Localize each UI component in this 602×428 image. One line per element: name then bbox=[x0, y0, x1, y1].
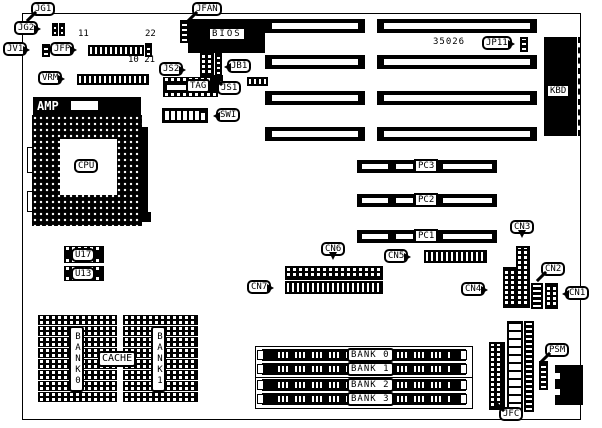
kbd-dashed-edge bbox=[578, 37, 580, 136]
jg2-label: JG2 bbox=[14, 21, 38, 35]
jfc-label: JFC bbox=[499, 407, 523, 421]
simm-clip bbox=[257, 350, 264, 360]
power-connector-pins bbox=[524, 321, 534, 412]
swi-label: SWI bbox=[216, 108, 240, 122]
kbd-label: KBD bbox=[547, 85, 569, 97]
pc2-label: PC2 bbox=[414, 193, 438, 207]
cn5-label: CN5 bbox=[384, 249, 408, 263]
isa-slot-2-short bbox=[265, 55, 365, 69]
js2-header bbox=[200, 53, 214, 77]
isa-slot-3-short bbox=[265, 91, 365, 105]
pci-slot-segment bbox=[443, 164, 492, 169]
simm-clip bbox=[460, 380, 467, 390]
cn4-header bbox=[503, 267, 516, 308]
motherboard-diagram: JG1 JG2 JV1 JFP 11 22 10 21 VRM AMP CPU … bbox=[0, 0, 602, 428]
cn2-label: CN2 bbox=[541, 262, 565, 276]
pc3-label: PC3 bbox=[414, 159, 438, 173]
swi-dip-end-switch bbox=[200, 112, 206, 121]
pci-slot-segment bbox=[396, 164, 413, 169]
jfp-pin11-number: 11 bbox=[78, 30, 89, 39]
jg2-jumper bbox=[52, 23, 58, 36]
cache-bank1-label: BANK1 bbox=[151, 326, 166, 392]
cache-chip bbox=[38, 392, 117, 402]
cn6-label: CN6 bbox=[321, 242, 345, 256]
u17-label: U17 bbox=[71, 248, 95, 262]
swi-dip-positions bbox=[165, 111, 199, 120]
jfan-label: JFAN bbox=[192, 2, 222, 16]
jg2-jumper-2 bbox=[59, 23, 65, 36]
connector-notch bbox=[555, 389, 560, 395]
tag-ram-window bbox=[167, 85, 186, 90]
swi-dip-switch bbox=[162, 108, 208, 123]
board-part-number: 35026 bbox=[433, 38, 465, 47]
u13-label: U13 bbox=[71, 267, 95, 281]
bank0-label: BANK 0 bbox=[347, 348, 394, 362]
cpu-socket-tab bbox=[27, 147, 33, 173]
cn7-label: CN7 bbox=[247, 280, 271, 294]
cache-label: CACHE bbox=[98, 351, 136, 367]
cpu-socket-foot bbox=[141, 212, 151, 222]
js2-label: JS2 bbox=[159, 62, 183, 76]
amp-window bbox=[71, 101, 98, 110]
header-right-of-tag bbox=[247, 77, 268, 86]
vrm-header bbox=[77, 74, 149, 85]
pc1-label: PC1 bbox=[414, 229, 438, 243]
cpu-socket-lever bbox=[140, 127, 148, 213]
jfp-label: JFP bbox=[50, 42, 74, 56]
simm-clip bbox=[257, 364, 264, 374]
pci-slot-segment bbox=[362, 234, 388, 239]
pci-slot-segment bbox=[396, 198, 413, 203]
cache-bank0-label: BANK0 bbox=[69, 326, 84, 392]
cn4-label: CN4 bbox=[461, 282, 485, 296]
jv1-label: JV1 bbox=[3, 42, 27, 56]
simm-clip bbox=[257, 380, 264, 390]
jp11-label: JP11 bbox=[482, 36, 512, 50]
isa-slot-1-long bbox=[377, 19, 537, 33]
cn6-header bbox=[285, 266, 383, 280]
power-switch-connector bbox=[555, 365, 583, 405]
jfp-pin10-21-number: 10 21 bbox=[128, 56, 155, 65]
bios-label: BIOS bbox=[209, 28, 245, 40]
cache-chip bbox=[38, 315, 117, 325]
isa-slot-4-long bbox=[377, 127, 537, 141]
cpu-socket-tab-2 bbox=[27, 191, 33, 212]
isa-slot-4-short bbox=[265, 127, 365, 141]
pci-slot-segment bbox=[443, 198, 492, 203]
simm-clip bbox=[460, 364, 467, 374]
pci-slot-segment bbox=[362, 198, 388, 203]
psm-header bbox=[539, 361, 548, 390]
isa-slot-2-long bbox=[377, 55, 537, 69]
connector-notch bbox=[555, 373, 560, 379]
bank2-label: BANK 2 bbox=[347, 378, 394, 392]
jv1-jumper bbox=[42, 44, 50, 57]
power-connector bbox=[507, 321, 523, 412]
simm-clip bbox=[460, 350, 467, 360]
isa-slot-1-short bbox=[265, 19, 365, 33]
tag-label: TAG bbox=[186, 79, 210, 93]
js1-label: JS1 bbox=[217, 81, 241, 95]
bank1-label: BANK 1 bbox=[347, 362, 394, 376]
cpu-label: CPU bbox=[74, 159, 98, 173]
jg1-label: JG1 bbox=[31, 2, 55, 16]
cache-chip bbox=[123, 392, 198, 402]
bank3-label: BANK 3 bbox=[347, 392, 394, 406]
cn1-label: CN1 bbox=[565, 286, 589, 300]
cn3-header bbox=[516, 246, 530, 308]
vrm-label: VRM bbox=[38, 71, 62, 85]
cn5-header bbox=[424, 250, 487, 263]
jp11-jumper bbox=[520, 37, 528, 52]
amp-regulator: AMP bbox=[33, 97, 141, 116]
isa-slot-3-long bbox=[377, 91, 537, 105]
jfc-header bbox=[489, 342, 505, 410]
cache-chip bbox=[123, 315, 198, 325]
pci-slot-segment bbox=[362, 164, 388, 169]
cn3-label: CN3 bbox=[510, 220, 534, 234]
simm-clip bbox=[460, 394, 467, 404]
psm-label: PSM bbox=[545, 343, 569, 357]
cn2-header bbox=[531, 283, 543, 309]
pci-slot-segment bbox=[443, 234, 492, 239]
amp-label: AMP bbox=[37, 100, 59, 112]
cn7-header bbox=[285, 281, 383, 294]
simm-clip bbox=[257, 394, 264, 404]
pci-slot-segment bbox=[396, 234, 413, 239]
cn1-header bbox=[545, 283, 558, 309]
jb1-label: JB1 bbox=[227, 59, 251, 73]
jfp-pin22-number: 22 bbox=[145, 30, 156, 39]
